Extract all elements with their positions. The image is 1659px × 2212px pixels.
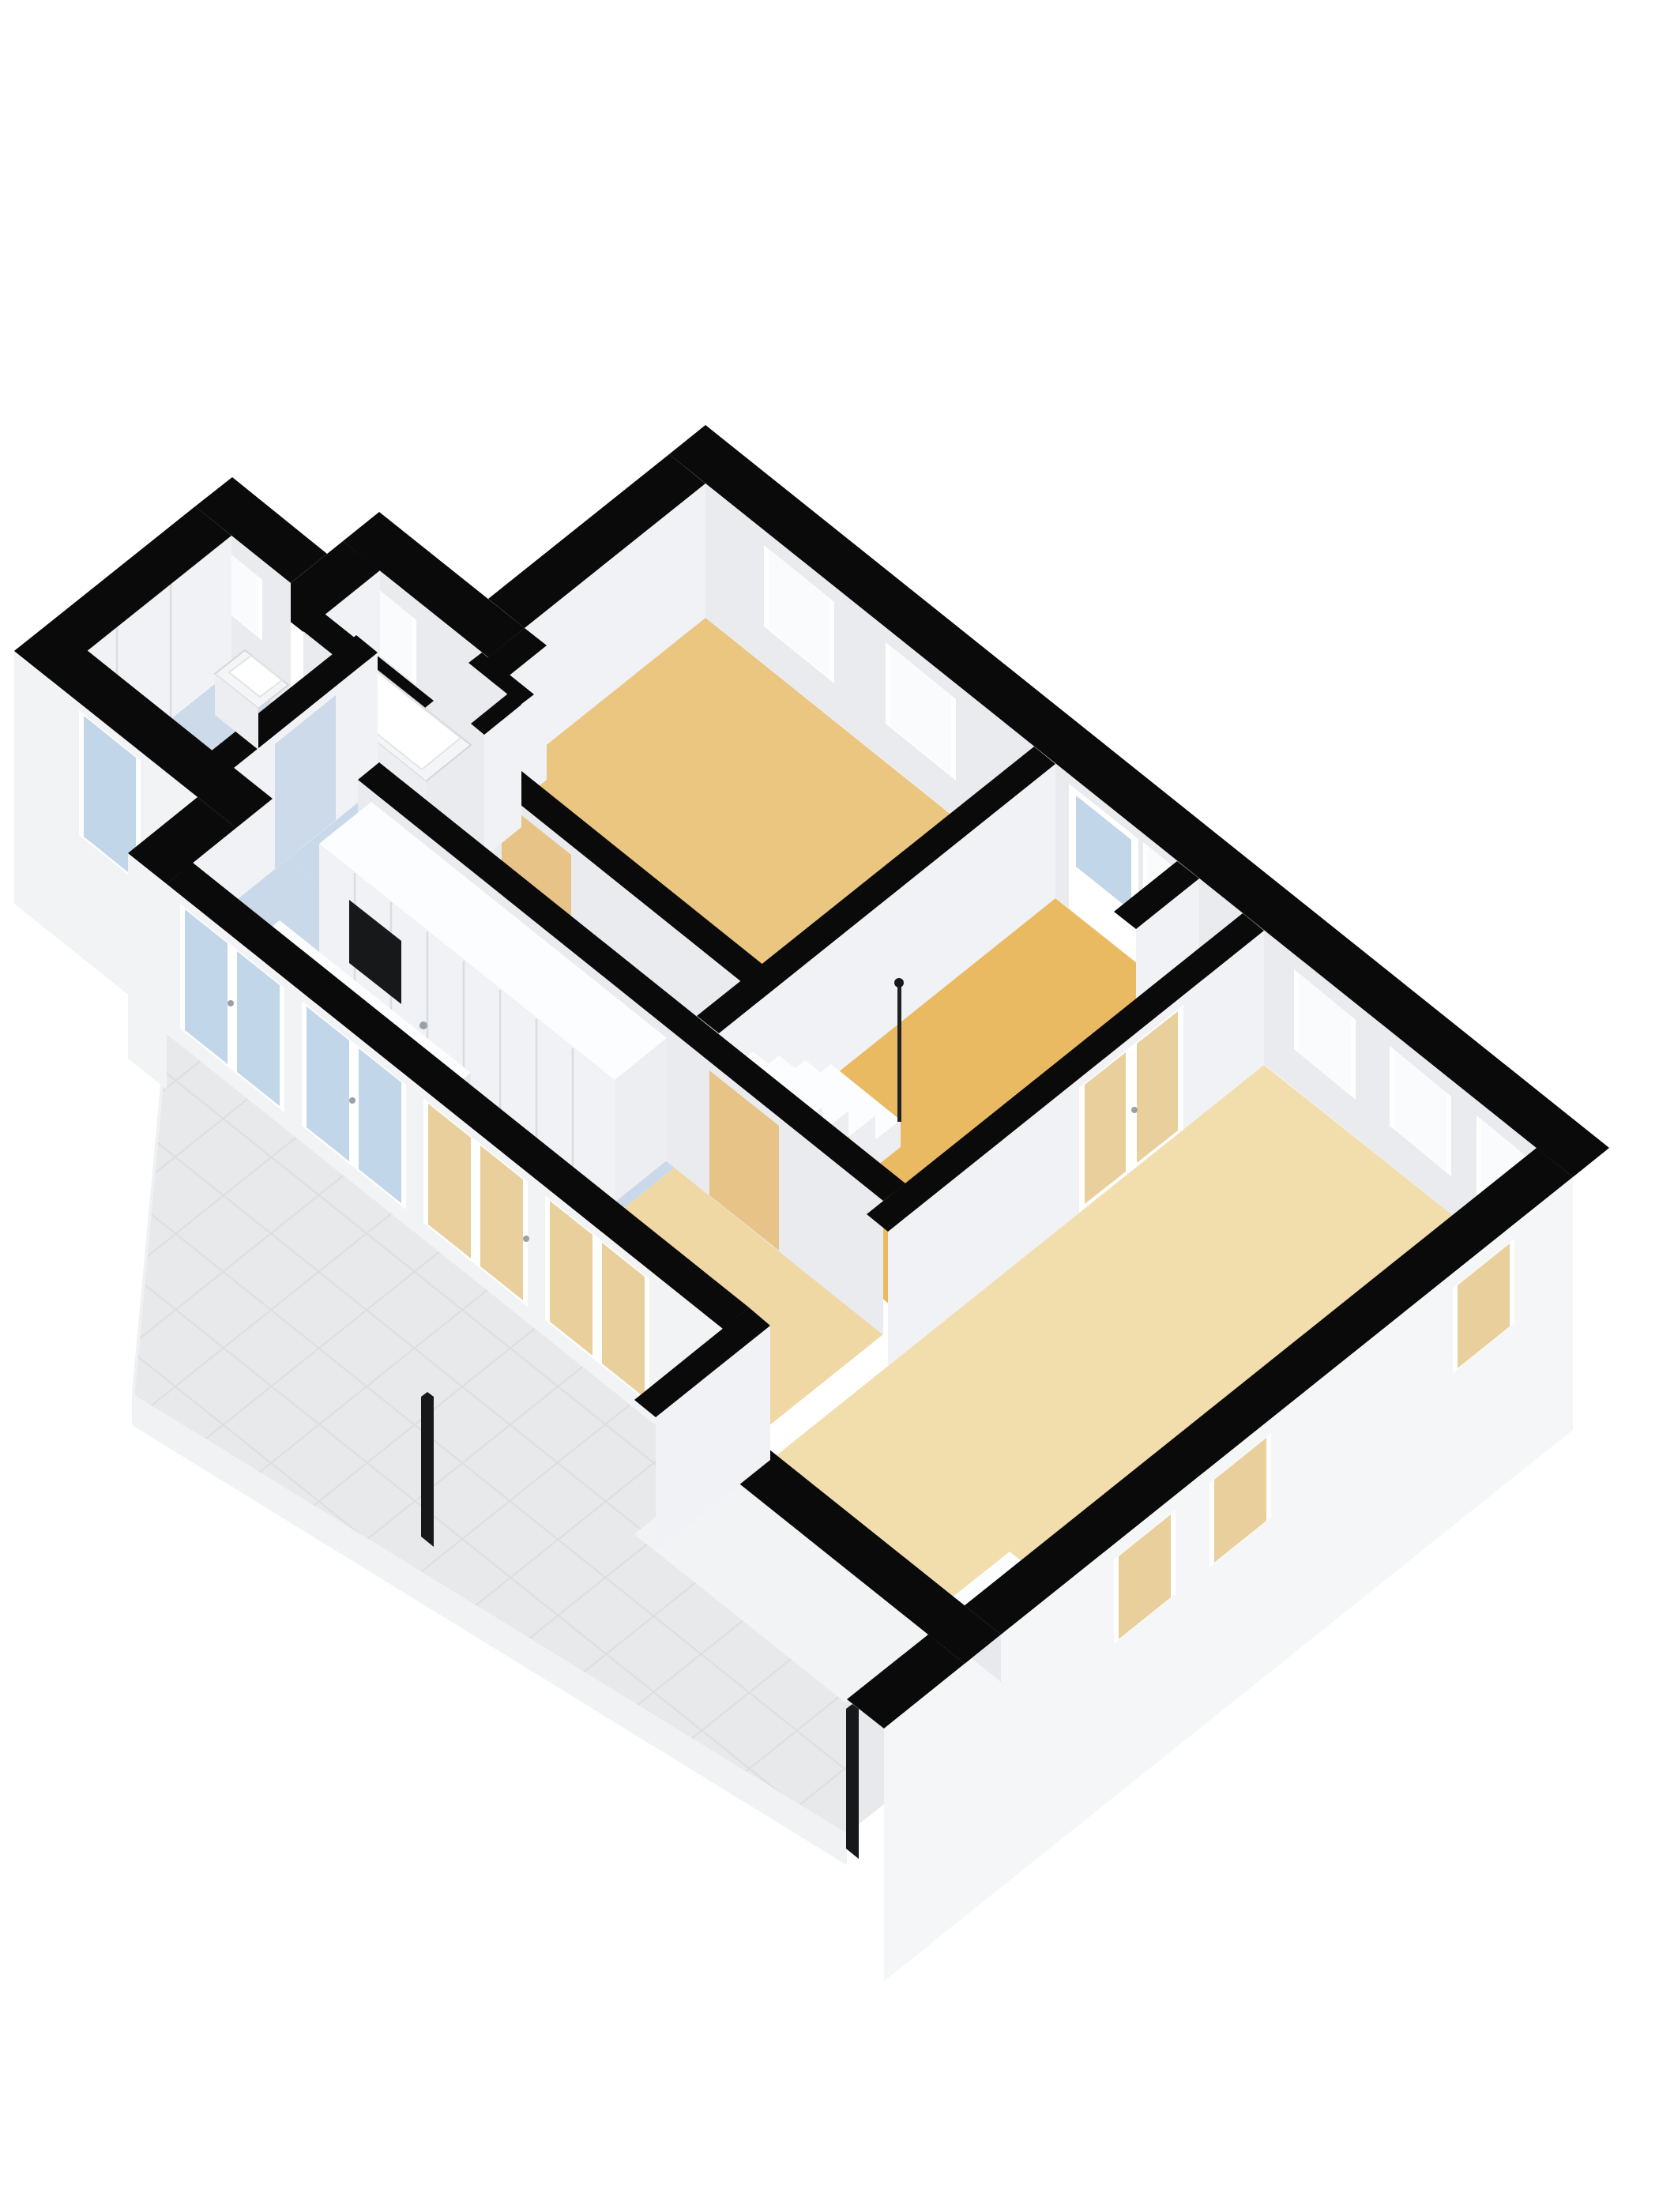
stair-railing-post [897,985,901,1122]
french-door-handle [1131,1107,1138,1113]
stair-railing-knob [894,978,904,987]
terrace-door-handle [228,1000,234,1006]
corner-wall-sface [128,853,167,1089]
terrace-post-south [846,1709,859,1859]
terrace-post-west [421,1397,434,1547]
terrace-door-handle [349,1097,355,1104]
floorplan-canvas [0,0,1659,2212]
terrace-door-handle [523,1236,529,1242]
island-faucet [419,1021,427,1029]
floorplan-3d-render [0,0,1659,2212]
